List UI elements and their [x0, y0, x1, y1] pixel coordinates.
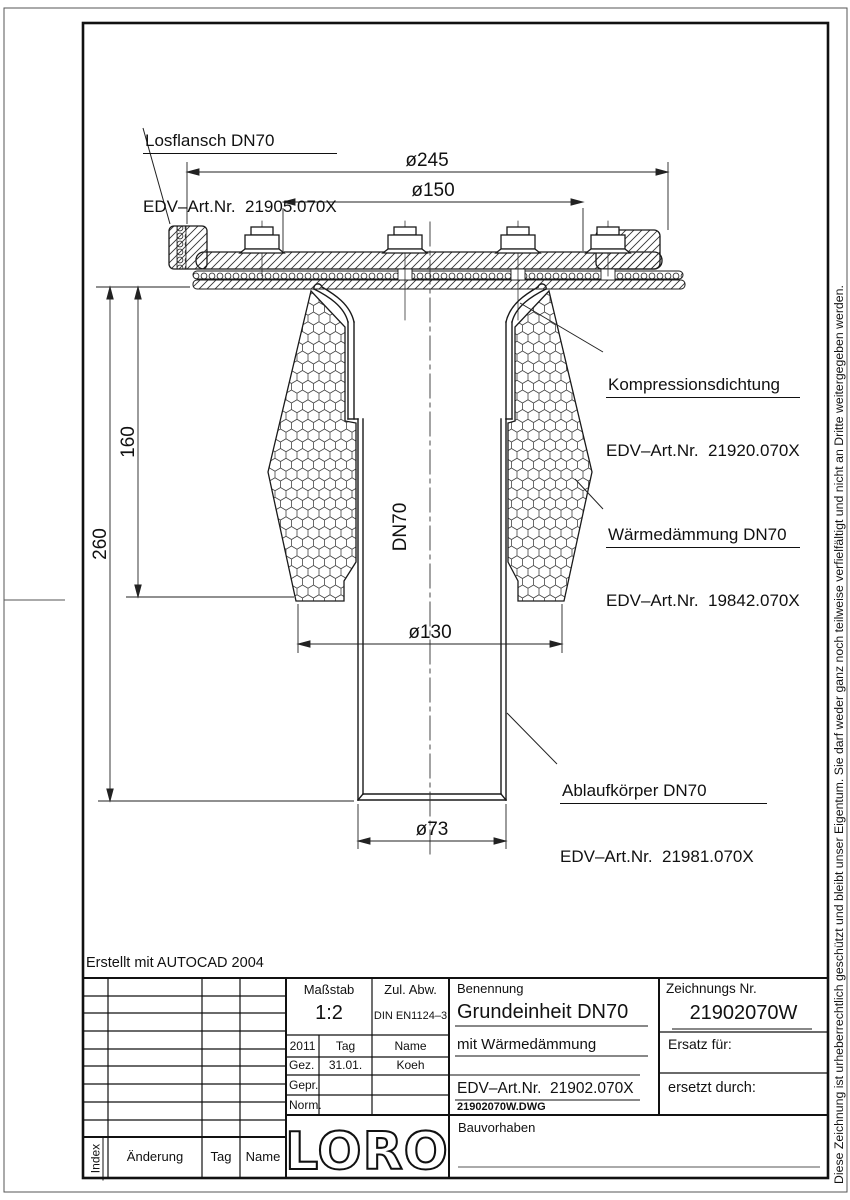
dim-260: 260 — [90, 528, 111, 560]
dim-d245: ø245 — [405, 150, 448, 171]
dwg-filename: 21902070W.DWG — [457, 1101, 546, 1113]
approval-name-header: Name — [372, 1040, 449, 1053]
dim-d150: ø150 — [411, 180, 454, 201]
callout-losflansch-line2: EDV–Art.Nr. 21905.070X — [143, 195, 337, 217]
zul-abw-value: DIN EN1124–3 — [372, 1010, 449, 1022]
callout-ablaufkoerper-line1: Ablaufkörper DN70 — [560, 781, 767, 804]
pipe-size-label: DN70 — [390, 503, 411, 552]
massstab-label: Maßstab — [286, 983, 372, 997]
approval-norm-label: Norm. — [289, 1099, 322, 1112]
bauvorhaben-label: Bauvorhaben — [458, 1121, 535, 1135]
callout-waermedaemmung-line2: EDV–Art.Nr. 19842.070X — [606, 589, 800, 611]
leader-ablaufkoerper — [507, 713, 557, 764]
approval-gez-date: 31.01. — [319, 1059, 372, 1072]
copyright-notice-vertical: Diese Zeichnung ist urheberrechtlich ges… — [832, 334, 846, 1184]
callout-kompressionsdichtung-line2: EDV–Art.Nr. 21920.070X — [606, 439, 800, 461]
approval-tag-header: Tag — [319, 1040, 372, 1053]
zeichnungs-nr-label: Zeichnungs Nr. — [666, 982, 757, 997]
ersetzt-durch-label: ersetzt durch: — [668, 1081, 756, 1097]
approval-year: 2011 — [286, 1040, 319, 1053]
flange-top-plate — [196, 252, 662, 269]
insulation-left-section — [268, 291, 356, 601]
subtitle: mit Wärmedämmung — [457, 1037, 596, 1054]
dim-d130: ø130 — [408, 622, 451, 643]
revision-index-label: Index — [89, 1137, 104, 1181]
revision-tag-label: Tag — [202, 1150, 240, 1164]
dim-d73: ø73 — [416, 819, 449, 840]
edv-art-nr: EDV–Art.Nr. 21902.070X — [457, 1080, 634, 1097]
callout-losflansch: Losflansch DN70 EDV–Art.Nr. 21905.070X — [143, 90, 337, 238]
callout-kompressionsdichtung: Kompressionsdichtung EDV–Art.Nr. 21920.0… — [606, 334, 800, 482]
lower-clamp-plate — [193, 280, 685, 289]
created-with-note: Erstellt mit AUTOCAD 2004 — [86, 956, 264, 972]
loro-logo: LORO — [285, 1122, 449, 1182]
drawing-sheet: ø245 ø150 160 260 ø130 ø73 DN70 — [0, 0, 850, 1200]
benennung-label: Benennung — [457, 982, 524, 996]
dim-160: 160 — [118, 426, 139, 458]
revision-aenderung-label: Änderung — [108, 1150, 202, 1164]
benennung-value: Grundeinheit DN70 — [457, 1001, 628, 1023]
callout-losflansch-line1: Losflansch DN70 — [143, 131, 337, 154]
zeichnungs-nr-value: 21902070W — [659, 1002, 828, 1024]
approval-gez-name: Koeh — [372, 1059, 449, 1072]
approval-gez-label: Gez. — [289, 1059, 314, 1072]
callout-kompressionsdichtung-line1: Kompressionsdichtung — [606, 375, 800, 398]
zul-abw-label: Zul. Abw. — [372, 983, 449, 997]
callout-waermedaemmung: Wärmedämmung DN70 EDV–Art.Nr. 19842.070X — [606, 484, 800, 632]
ersatz-fuer-label: Ersatz für: — [668, 1037, 732, 1052]
callout-ablaufkoerper: Ablaufkörper DN70 EDV–Art.Nr. 21981.070X — [560, 740, 767, 888]
massstab-value: 1:2 — [286, 1002, 372, 1024]
callout-ablaufkoerper-line2: EDV–Art.Nr. 21981.070X — [560, 845, 767, 867]
approval-gepr-label: Gepr. — [289, 1079, 318, 1092]
revision-name-label: Name — [240, 1150, 286, 1164]
callout-waermedaemmung-line1: Wärmedämmung DN70 — [606, 525, 800, 548]
